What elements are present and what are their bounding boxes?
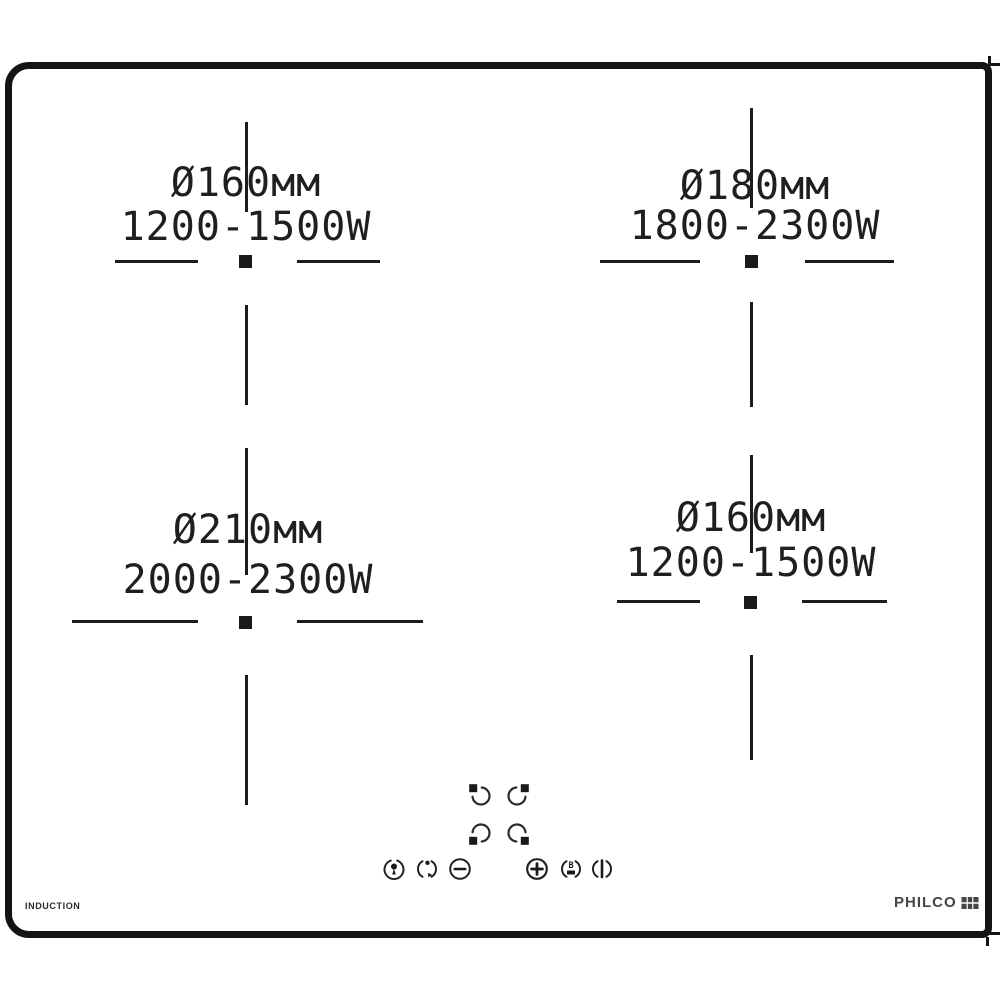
zone-diameter-label: Ø160мм <box>171 163 322 203</box>
zone-select-top-right-icon[interactable] <box>504 783 530 809</box>
zone-power-label: 1800-2300W <box>630 206 881 246</box>
corner-tick-bottom-right <box>989 932 1000 935</box>
child-lock-icon[interactable] <box>381 856 407 882</box>
power-icon[interactable] <box>589 856 615 882</box>
zone-power-label: 2000-2300W <box>123 560 374 600</box>
zone-center-square <box>745 255 758 268</box>
induction-label: INDUCTION <box>25 901 80 911</box>
zone-select-top-left-icon[interactable] <box>468 783 494 809</box>
induction-hob-product-image: Ø160мм 1200-1500W Ø180мм 1800-2300W Ø210… <box>0 0 1000 1000</box>
booster-letter: B <box>568 861 573 871</box>
corner-tick-top-right-vertical <box>988 56 991 65</box>
philco-crest-icon <box>961 896 979 910</box>
corner-tick-bottom-right-vertical <box>986 937 989 946</box>
zone-cross-line-left <box>115 260 198 263</box>
zone-select-bottom-left-icon[interactable] <box>468 820 494 846</box>
zone-cross-line-right <box>297 260 380 263</box>
zone-center-square <box>239 255 252 268</box>
timer-icon[interactable] <box>414 856 440 882</box>
zone-cross-line-right <box>297 620 423 623</box>
zone-select-bottom-right-icon[interactable] <box>504 820 530 846</box>
zone-power-label: 1200-1500W <box>626 543 877 583</box>
zone-cross-line-bottom <box>245 305 248 405</box>
zone-center-square <box>744 596 757 609</box>
zone-cross-line-left <box>600 260 700 263</box>
booster-icon[interactable]: B <box>558 856 584 882</box>
zone-cross-line-bottom <box>750 655 753 760</box>
zone-diameter-label: Ø210мм <box>173 510 324 550</box>
zone-diameter-label: Ø160мм <box>676 498 827 538</box>
brand-name: PHILCO <box>894 895 957 910</box>
zone-power-label: 1200-1500W <box>121 207 372 247</box>
zone-cross-line-left <box>617 600 700 603</box>
zone-cross-line-bottom <box>750 302 753 407</box>
zone-cross-line-bottom <box>245 675 248 805</box>
zone-center-square <box>239 616 252 629</box>
plus-icon[interactable] <box>524 856 550 882</box>
minus-icon[interactable] <box>447 856 473 882</box>
brand-logo: PHILCO <box>894 895 979 910</box>
cooktop-surface: Ø160мм 1200-1500W Ø180мм 1800-2300W Ø210… <box>5 62 992 938</box>
zone-cross-line-left <box>72 620 198 623</box>
zone-diameter-label: Ø180мм <box>680 166 831 206</box>
zone-cross-line-right <box>802 600 887 603</box>
zone-cross-line-right <box>805 260 894 263</box>
